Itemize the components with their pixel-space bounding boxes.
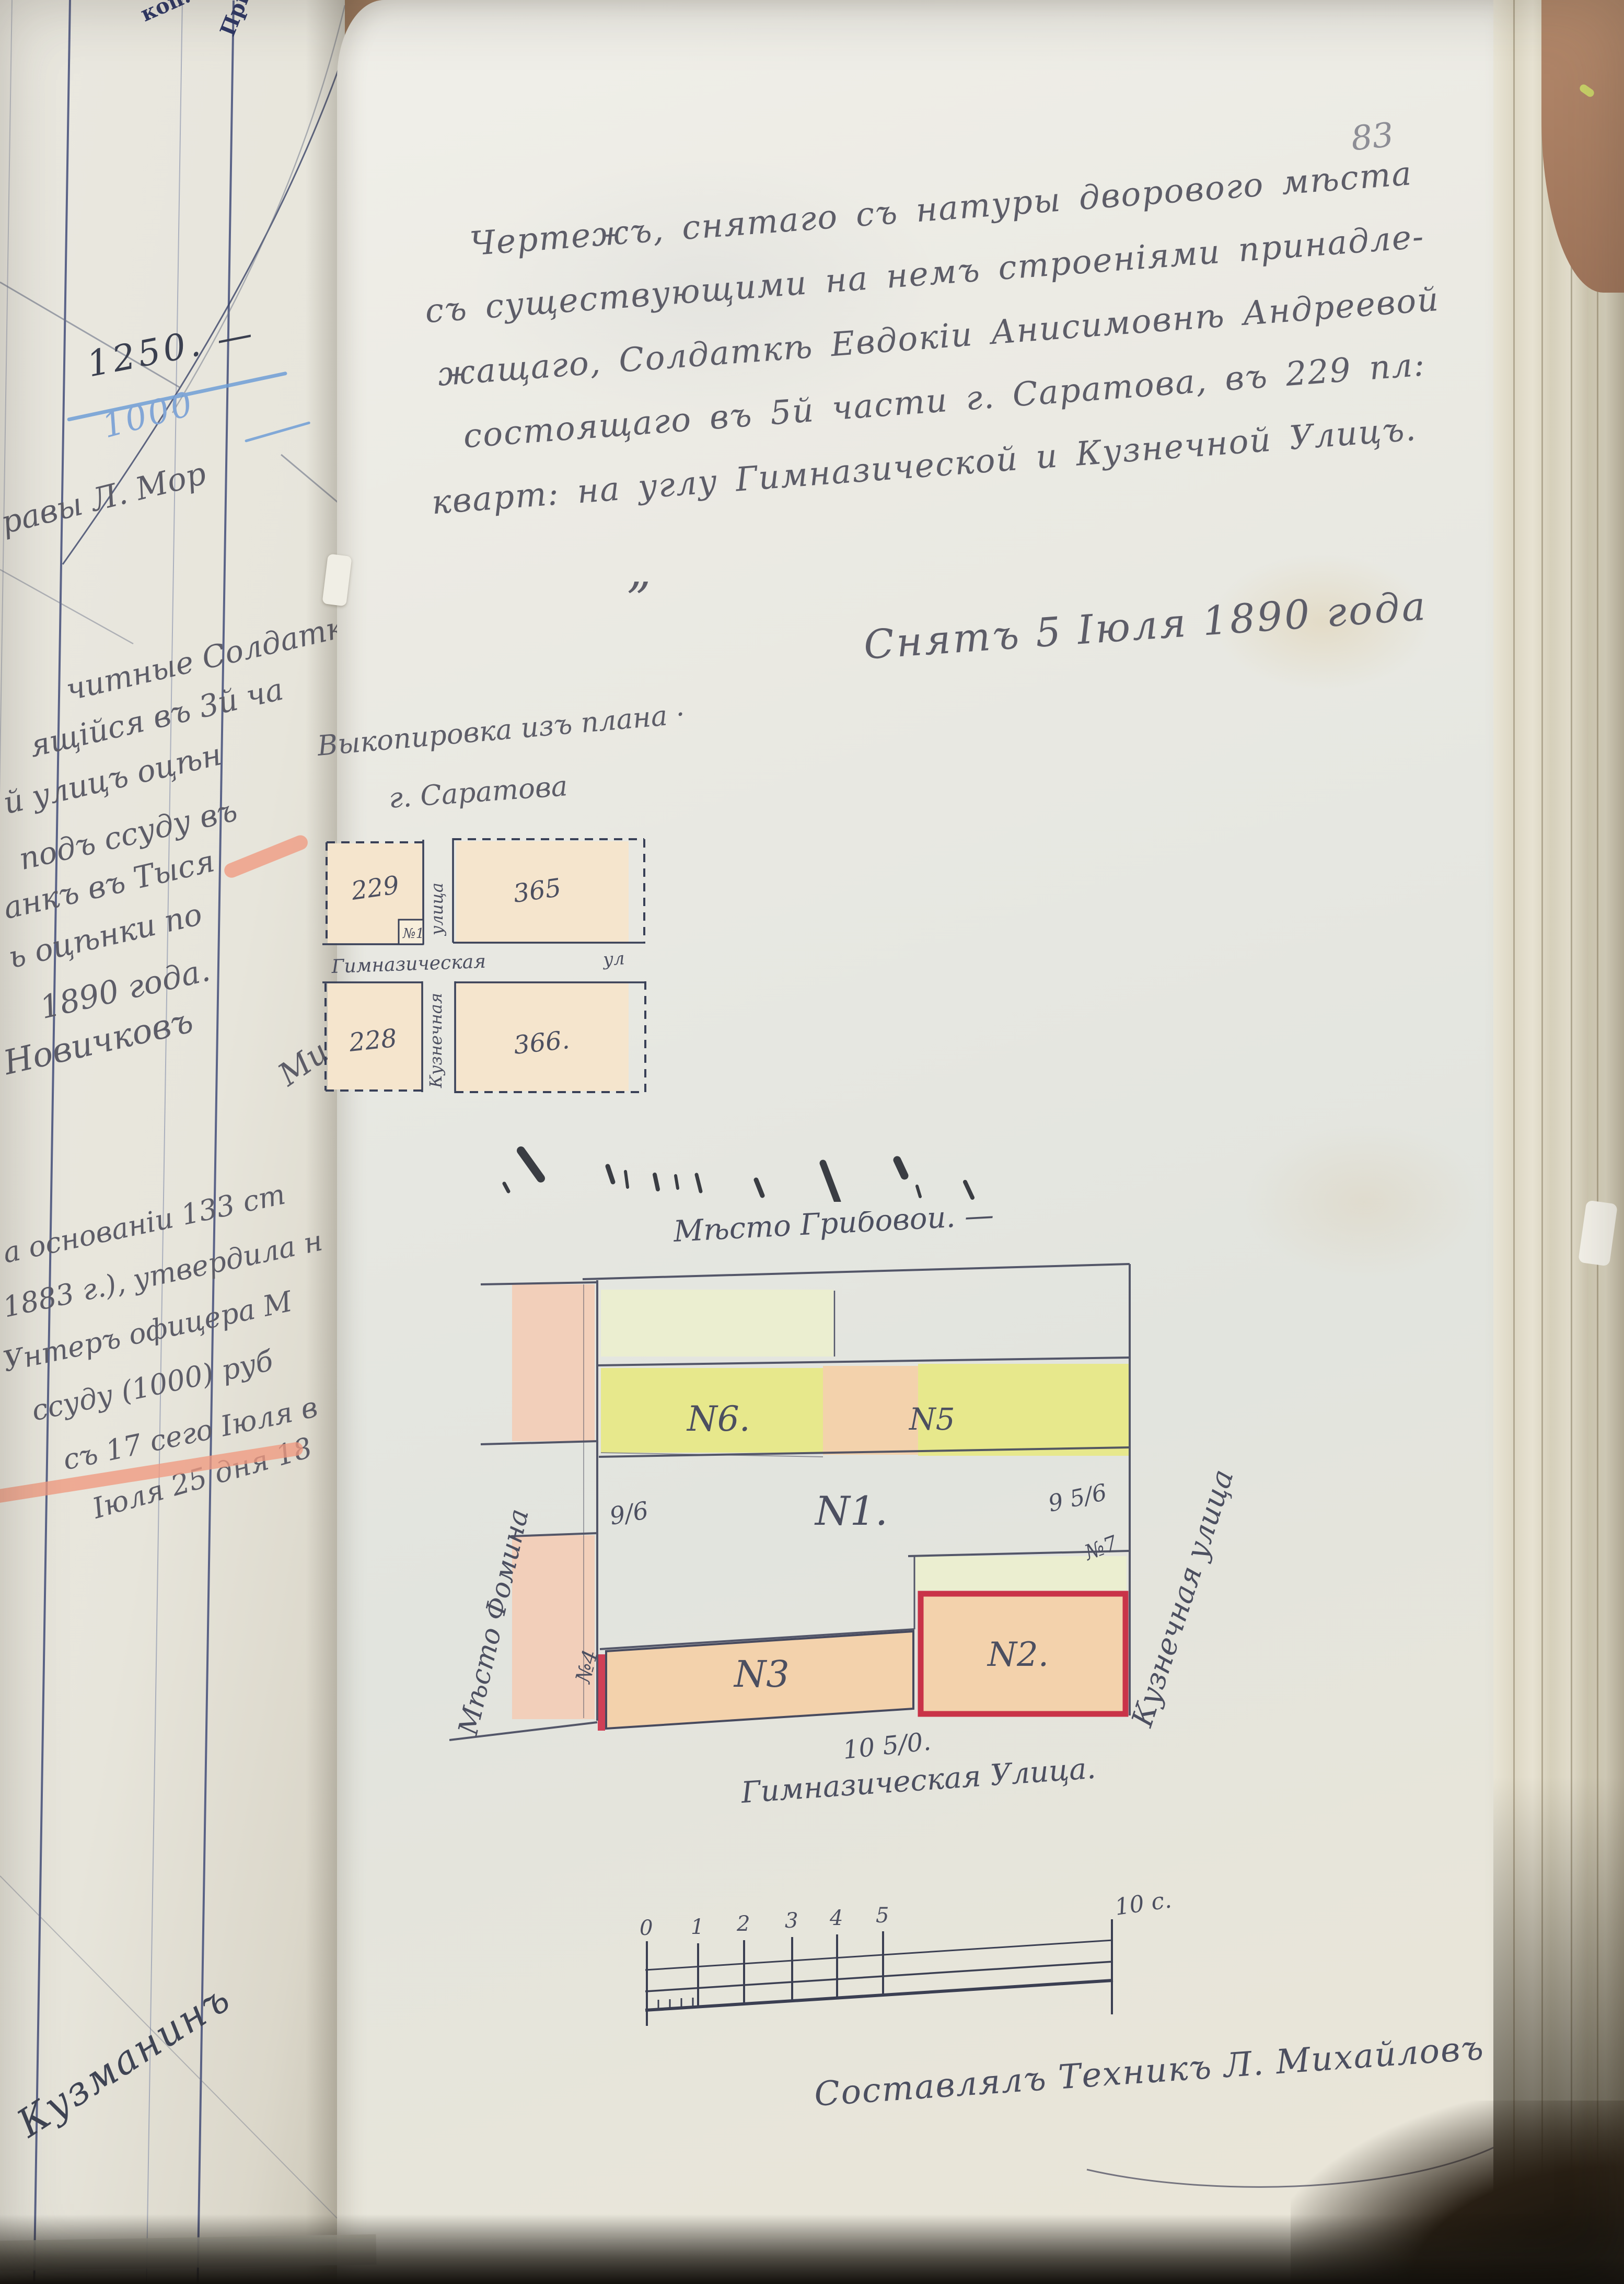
inset-block-228-number: 228 xyxy=(347,1024,398,1058)
plan-top-label: Мѣсто Грибовой. — xyxy=(672,1211,994,1249)
inset-street-kuznechnaya-label: Кузнечная xyxy=(426,993,446,1088)
plot-plan: Мѣсто Грибовой. — N6. N5 N1. N3 N2. 9/6 … xyxy=(449,1211,1265,1820)
archival-document-photo: коп. Прим. 1250. — 1000 равы Л. Мор читн… xyxy=(0,0,1624,2284)
inset-plot-n1-label: №1 xyxy=(402,926,424,942)
neighbor-pink-strip-upper xyxy=(512,1284,595,1441)
parcel-n5-area xyxy=(823,1366,918,1455)
green-strip-top xyxy=(601,1290,833,1357)
scale-tick-label: 3 xyxy=(785,1909,798,1933)
scale-tick-label: 4 xyxy=(829,1906,843,1930)
scale-end-label: 10 с. xyxy=(1113,1889,1173,1921)
inset-city-plan: 229 365 228 366. №1 Гимназическая ул ули… xyxy=(311,827,656,1111)
measurement-left: 9/6 xyxy=(608,1496,651,1531)
inset-block-366-number: 366. xyxy=(512,1025,571,1060)
measurement-bottom: 10 5/0. xyxy=(841,1727,932,1765)
inset-street-gimnazicheskaya-label: Гимназическая xyxy=(331,951,486,978)
photo-bottom-shadow xyxy=(0,2215,1624,2284)
street-kuznechnaya-label: Кузнечная улица xyxy=(1125,1465,1240,1731)
parcel-n6-label: N6. xyxy=(686,1399,750,1439)
scale-tick-label: 1 xyxy=(691,1915,704,1939)
street-gimnazicheskaya-label: Гимназическая Улица. xyxy=(739,1752,1097,1810)
neighbor-pink-strip-lower xyxy=(512,1535,595,1719)
ink-dash-marks xyxy=(489,1123,1042,1202)
measurement-right: 9 5/6 xyxy=(1046,1479,1109,1517)
scale-bar-lines xyxy=(645,1919,1113,2026)
quote-mark: „ xyxy=(627,543,652,598)
inset-street-suffix-label: ул xyxy=(601,948,625,970)
parcel-n3-label: N3 xyxy=(733,1653,790,1696)
scale-tick-label: 5 xyxy=(876,1904,889,1928)
inset-street-vertical-top-label: улица xyxy=(427,883,447,936)
scale-bar: 0 1 2 3 4 5 10 с. xyxy=(596,1889,1291,2046)
scale-tick-label: 2 xyxy=(736,1912,750,1936)
parcel-n5-label: N5 xyxy=(908,1401,955,1437)
parcel-n2-label: N2. xyxy=(987,1636,1049,1674)
scale-tick-label: 0 xyxy=(640,1916,653,1940)
left-ledger-page: коп. Прим. 1250. — 1000 равы Л. Мор читн… xyxy=(0,0,345,2284)
parcel-n1-label: N1. xyxy=(814,1488,888,1534)
